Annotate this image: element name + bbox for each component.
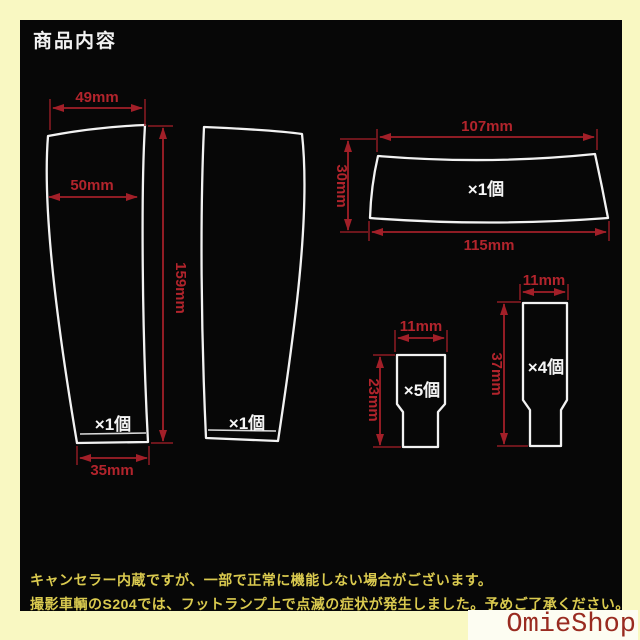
wide-panel-top-width-label: 107mm — [461, 118, 513, 135]
left-pillar-top-width-label: 49mm — [75, 89, 118, 106]
tall-tab-width-label: 11mm — [523, 272, 566, 289]
small-tab-quantity: ×5個 — [404, 380, 440, 400]
left-pillar-bottom-width-label: 35mm — [90, 462, 133, 479]
tall-tab-height-label: 37mm — [488, 352, 505, 395]
shop-watermark: OmieShop — [468, 610, 638, 640]
left-pillar-outline — [47, 125, 148, 443]
right-pillar-quantity: ×1個 — [229, 413, 265, 433]
small-tab-outline — [397, 355, 445, 447]
left-pillar-quantity: ×1個 — [95, 414, 131, 434]
left-pillar-upper-width-label: 50mm — [70, 177, 113, 194]
wide-panel-quantity: ×1個 — [468, 179, 504, 199]
footer-note-line1: キャンセラー内蔵ですが、一部で正常に機能しない場合がございます。 — [30, 570, 492, 590]
product-info-image: 商品内容 ×1個 49mm 50mm 159mm 35mm ×1個 ×1個 — [0, 0, 640, 640]
right-pillar-outline — [202, 127, 305, 441]
tall-tab-quantity: ×4個 — [528, 357, 564, 377]
left-pillar-height-label: 159mm — [172, 262, 189, 314]
dimension-diagram: ×1個 49mm 50mm 159mm 35mm ×1個 ×1個 107mm 3… — [0, 0, 640, 640]
shop-watermark-text: OmieShop — [506, 612, 636, 639]
wide-panel-bottom-width-label: 115mm — [464, 237, 515, 254]
small-tab-width-label: 11mm — [400, 318, 443, 335]
